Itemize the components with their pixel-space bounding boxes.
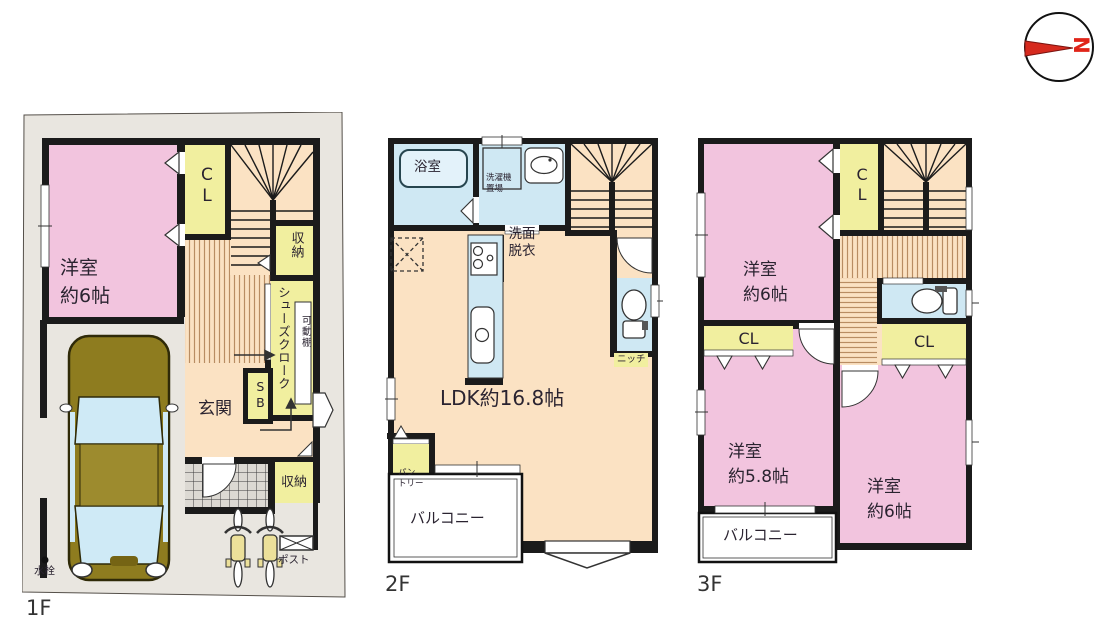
closet-label: CL [195,165,218,207]
hallway-floor [840,236,966,278]
bay-window-icon [545,541,630,553]
bath-label: 浴室 [414,158,441,176]
post-label: ポスト [278,553,310,567]
floor2-plan: 浴室 洗濯機置場 洗面脱衣 LDK約16.8帖 ニッチ パントリー バルコニー [385,135,663,575]
balcony-label: バルコニー [410,508,485,528]
closet-right-label: CL [882,331,966,353]
car-icon [60,336,178,580]
shoe-closet-label: シューズクローク [274,286,291,390]
hallway-floor [185,240,230,363]
movable-shelf-label: 可動棚 [298,315,312,348]
staircase-icon [571,144,652,236]
storage-lower-label: 収納 [275,474,313,492]
pantry-label: パントリー [398,446,424,512]
bedroom-b-label: 洋室約5.8帖 [728,390,789,540]
balcony-label: バルコニー [723,525,798,545]
floor3-plan: 洋室約6帖 CL CL CL 洋室約5.8帖 洋室約6帖 バルコニー [695,135,980,578]
floor3-tag: 3F [697,572,722,596]
north-label: N [1069,36,1093,54]
toilet-icon [622,290,648,338]
window-icon [966,420,972,465]
staircase-icon [884,144,966,236]
floorplan-page: 洋室約6帖 CL 収納 シューズクローク 可動棚 SB 玄関 収納 ポスト 水栓… [0,0,1098,624]
water-faucet-icon [42,557,49,564]
sink-icon [525,148,563,183]
floor1-plan: 洋室約6帖 CL 収納 シューズクローク 可動棚 SB 玄関 収納 ポスト 水栓 [22,112,346,600]
window-icon [966,187,972,230]
hallway-floor [840,278,877,365]
post-box-icon [280,536,313,550]
closet-left-label: CL [704,328,793,350]
bedroom-label: 洋室約6帖 [60,198,110,366]
window-icon [966,290,972,316]
bedroom-c-label: 洋室約6帖 [867,425,912,575]
floor2-tag: 2F [385,572,410,596]
ldk-label: LDK約16.8帖 [440,385,564,412]
entrance-label: 玄関 [198,398,232,421]
closet-top-label: CL [851,165,873,205]
kitchen-sink-icon [471,307,494,363]
floor1-tag: 1F [26,596,51,620]
storage-upper-label: 収納 [287,231,305,259]
shoe-box-label: SB [251,379,268,411]
niche-label: ニッチ [617,354,646,367]
compass: N [1020,8,1098,86]
faucet-label: 水栓 [34,564,55,578]
washroom-label: 洗面脱衣 [490,192,554,294]
